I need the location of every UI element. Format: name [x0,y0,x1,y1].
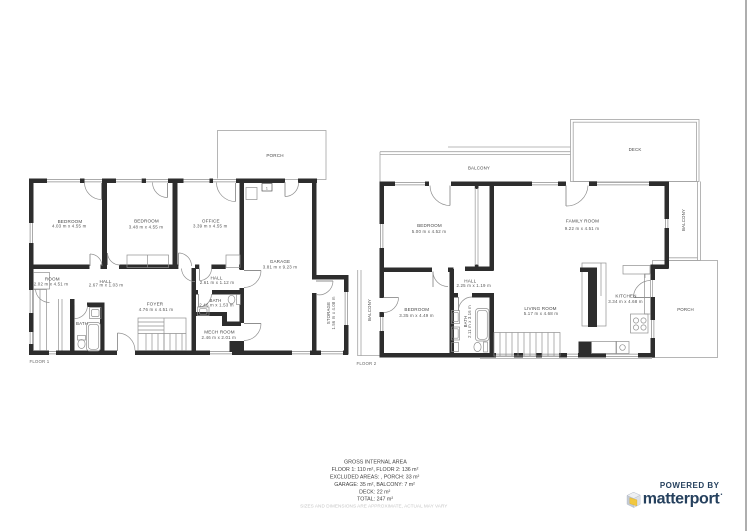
svg-text:4.03 m x 4.55 m: 4.03 m x 4.55 m [52,224,87,229]
svg-text:GROSS INTERNAL AREA: GROSS INTERNAL AREA [344,459,407,465]
svg-text:3.35 m x 4.49 m: 3.35 m x 4.49 m [399,313,434,318]
svg-text:2.46 m x 2.01 m: 2.46 m x 2.01 m [202,335,237,340]
svg-text:1.56 m x 4.08 m: 1.56 m x 4.08 m [331,296,336,329]
svg-text:3.81 m x 9.23 m: 3.81 m x 9.23 m [263,265,298,270]
svg-text:BEDROOM: BEDROOM [134,219,159,224]
svg-text:2.11 m x 3.16 m: 2.11 m x 3.16 m [467,305,472,338]
svg-text:OFFICE: OFFICE [202,218,220,223]
svg-text:4.76 m x 4.51 m: 4.76 m x 4.51 m [139,307,174,312]
svg-text:3.48 m x 4.55 m: 3.48 m x 4.55 m [129,224,164,229]
svg-text:5.00 m x 4.52 m: 5.00 m x 4.52 m [412,229,447,234]
svg-text:PORCH: PORCH [677,307,694,312]
svg-text:3.39 m x 4.55 m: 3.39 m x 4.55 m [193,224,228,229]
svg-text:SIZES AND DIMENSIONS ARE APPRO: SIZES AND DIMENSIONS ARE APPROXIMATE, AC… [300,504,447,509]
svg-text:POWERED BY: POWERED BY [660,481,720,490]
svg-text:FLOOR 1: FLOOR 1 [30,359,50,364]
svg-text:BALCONY: BALCONY [367,299,372,321]
svg-text:PORCH: PORCH [266,153,283,158]
svg-text:BEDROOM: BEDROOM [404,307,429,312]
svg-text:DECK: DECK [629,147,642,152]
svg-text:2.67 m x 1.03 m: 2.67 m x 1.03 m [89,283,124,288]
svg-text:1: 1 [266,186,268,190]
svg-text:GARAGE: GARAGE [270,259,291,264]
svg-text:2.46 m x 1.53 m: 2.46 m x 1.53 m [199,303,234,308]
svg-text:BATH: BATH [76,321,88,326]
svg-text:FAMILY ROOM: FAMILY ROOM [566,219,599,224]
svg-text:9.22 m x 4.51 m: 9.22 m x 4.51 m [565,226,600,231]
svg-text:KITCHEN: KITCHEN [615,293,636,298]
svg-text:GARAGE: 35 m², BALCONY: 7 m²: GARAGE: 35 m², BALCONY: 7 m² [334,482,415,488]
svg-text:BALCONY: BALCONY [681,209,686,231]
svg-text:3.34 m x 4.68 m: 3.34 m x 4.68 m [608,299,643,304]
svg-text:matterport: matterport [643,491,721,508]
svg-text:2.25 m x 1.19 m: 2.25 m x 1.19 m [456,283,491,288]
svg-text:MECH ROOM: MECH ROOM [204,330,234,335]
svg-text:EXCLUDED AREAS: , PORCH: 33 m²: EXCLUDED AREAS: , PORCH: 33 m² [330,475,420,481]
svg-text:FLOOR 1: 110 m², FLOOR 2: 136: FLOOR 1: 110 m², FLOOR 2: 136 m² [332,467,419,473]
svg-text:2.02 m x 4.51 m: 2.02 m x 4.51 m [34,281,69,286]
svg-text:DECK: 22 m²: DECK: 22 m² [359,489,390,495]
svg-text:2.61 m x 1.12 m: 2.61 m x 1.12 m [200,280,235,285]
svg-text:BEDROOM: BEDROOM [417,223,442,228]
svg-text:FLOOR 2: FLOOR 2 [357,361,377,366]
svg-text:TOTAL: 247 m²: TOTAL: 247 m² [357,497,393,503]
svg-text:5.17 m x 4.68 m: 5.17 m x 4.68 m [524,311,559,316]
svg-text:BALCONY: BALCONY [468,165,490,170]
svg-text:FOYER: FOYER [147,302,164,307]
